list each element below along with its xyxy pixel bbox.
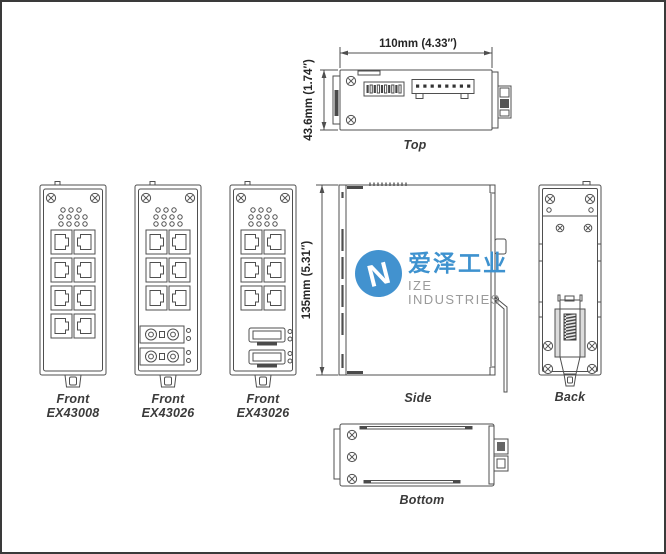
front-ex43026-sfp-label: Front — [247, 393, 280, 406]
screw-icon — [543, 341, 552, 350]
fiber-port — [140, 348, 184, 365]
led-indicators — [154, 208, 182, 226]
screw-icon — [346, 115, 355, 124]
screw-icon — [280, 193, 289, 202]
front-ex43008-model: EX43008 — [47, 407, 100, 420]
screw-icon — [556, 224, 564, 232]
spring-coil — [564, 314, 576, 340]
datasheet-page: 110mm (4.33″) 43.6mm (1.74″) 135mm (5.31… — [0, 0, 666, 554]
front-view-ex43026-fiber-drawing — [135, 182, 201, 388]
screw-icon — [545, 194, 554, 203]
screw-icon — [46, 193, 55, 202]
din-rail-clip-bottom — [489, 426, 508, 484]
front-ex43026-fiber-label: Front — [152, 393, 185, 406]
dimension-lines-side-height — [316, 185, 338, 375]
screw-icon — [587, 341, 596, 350]
dimension-lines-top-width — [340, 47, 492, 68]
screw-icon — [90, 193, 99, 202]
rj45-port-pair — [51, 314, 95, 338]
bottom-view-drawing — [334, 424, 508, 486]
watermark-logo: N 爱泽工业 IZE INDUSTRIES — [354, 248, 524, 300]
rj45-port-pair — [241, 286, 285, 310]
screw-icon — [346, 76, 355, 85]
screw-icon — [347, 474, 356, 483]
rj45-port-pair — [51, 286, 95, 310]
back-view-label: Back — [555, 391, 586, 404]
ize-logo-icon: N — [354, 249, 403, 298]
screw-icon — [585, 194, 594, 203]
screw-icon — [347, 452, 356, 461]
rj45-port-pair — [51, 258, 95, 282]
front-ex43026-fiber-model: EX43026 — [142, 407, 195, 420]
dimension-top-height-text: 43.6mm (1.74″) — [303, 59, 315, 141]
back-view-drawing — [539, 182, 601, 387]
screw-icon — [587, 364, 596, 373]
terminal-block — [412, 80, 474, 99]
screw-icon — [236, 193, 245, 202]
rj45-port-pair — [241, 230, 285, 254]
rj45-port-pair — [146, 258, 190, 282]
din-tab — [160, 375, 176, 387]
top-view-label: Top — [403, 139, 426, 152]
dimension-top-width-text: 110mm (4.33″) — [379, 38, 457, 50]
dimension-side-height-text: 135mm (5.31″) — [301, 241, 313, 319]
din-tab — [255, 375, 271, 387]
side-view-label: Side — [404, 392, 431, 405]
din-rail-latch — [555, 295, 585, 386]
screw-icon — [543, 364, 552, 373]
screw-icon — [141, 193, 150, 202]
din-rail-clip-top — [492, 72, 511, 128]
din-tab — [65, 375, 81, 387]
rj45-port-pair — [51, 230, 95, 254]
front-ex43026-sfp-model: EX43026 — [237, 407, 290, 420]
sfp-slot — [249, 328, 285, 346]
dimension-drawings — [2, 2, 666, 554]
front-view-ex43026-sfp-drawing — [230, 182, 296, 388]
rj45-port-pair — [146, 286, 190, 310]
rj45-port-pair — [146, 230, 190, 254]
screw-icon — [584, 224, 592, 232]
dip-switch-block — [364, 82, 404, 96]
rj45-port-pair — [241, 258, 285, 282]
front-ex43008-label: Front — [57, 393, 90, 406]
top-view-drawing — [320, 47, 511, 130]
fiber-port — [140, 326, 184, 343]
watermark-brand-en: IZE INDUSTRIES — [408, 279, 524, 307]
led-indicators — [59, 208, 87, 226]
front-view-ex43008-drawing — [40, 182, 106, 388]
screw-icon — [185, 193, 194, 202]
screw-icon — [347, 430, 356, 439]
watermark-brand-cn: 爱泽工业 — [408, 250, 508, 276]
led-indicators — [249, 208, 277, 226]
bottom-view-label: Bottom — [400, 494, 445, 507]
sfp-slot — [249, 350, 285, 368]
